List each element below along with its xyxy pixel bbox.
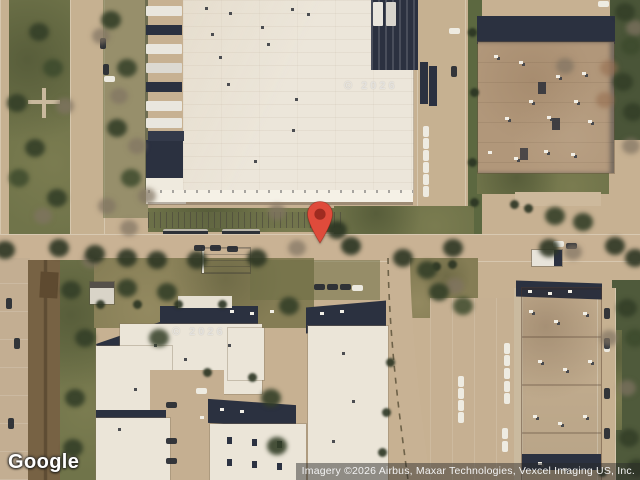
attribution-text: Imagery ©2026 Airbus, Maxar Technologies…: [302, 465, 635, 477]
se-parking-lot: [430, 298, 526, 480]
imagery-attribution: Imagery ©2026 Airbus, Maxar Technologies…: [296, 463, 640, 480]
se-brick-building-roof: [522, 288, 601, 480]
google-logo[interactable]: Google: [8, 451, 79, 474]
location-pin-marker[interactable]: [305, 200, 335, 245]
se-penthouse: [532, 250, 562, 266]
map-canvas[interactable]: © 2026 © 2026: [0, 0, 640, 480]
pin-body: [308, 202, 333, 244]
pin-dot: [314, 209, 325, 220]
